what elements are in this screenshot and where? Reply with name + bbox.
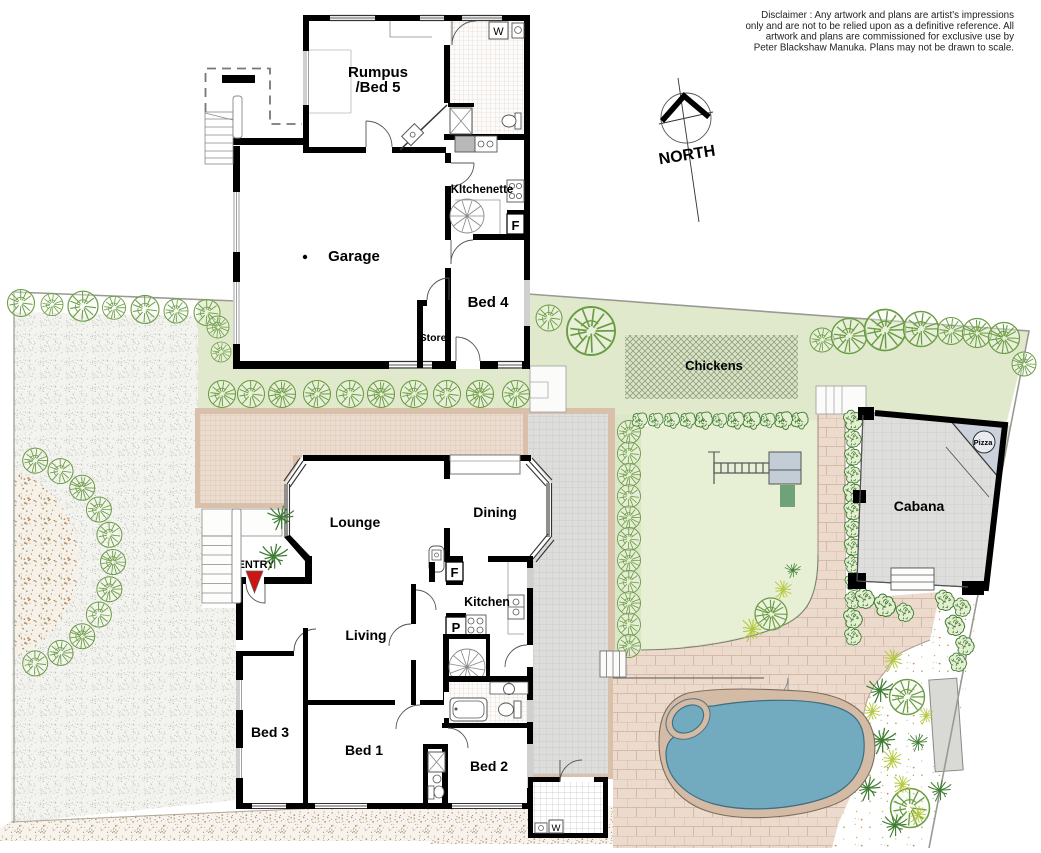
svg-text:F: F — [512, 218, 520, 233]
svg-text:P: P — [452, 620, 461, 635]
svg-text:Chickens: Chickens — [685, 358, 743, 373]
svg-text:Bed 1: Bed 1 — [345, 742, 383, 758]
svg-text:only and are not to be relied: only and are not to be relied upon as a … — [745, 21, 1014, 32]
svg-text:W: W — [493, 26, 504, 38]
svg-text:Bed 4: Bed 4 — [468, 294, 510, 311]
svg-text:Living: Living — [345, 627, 386, 643]
svg-text:artwork and plans are commissi: artwork and plans are commissioned for e… — [766, 32, 1014, 43]
svg-text:Garage: Garage — [328, 248, 380, 265]
svg-text:Pizza: Pizza — [974, 438, 994, 447]
svg-text:Cabana: Cabana — [894, 498, 945, 514]
svg-text:Disclaimer : Any artwork and p: Disclaimer : Any artwork and plans are a… — [761, 10, 1014, 21]
svg-text:Store: Store — [420, 332, 447, 344]
svg-text:W: W — [552, 823, 561, 834]
svg-text:Kitchen: Kitchen — [464, 595, 510, 609]
svg-text:KItchenette: KItchenette — [451, 184, 514, 196]
svg-text:Bed 2: Bed 2 — [470, 758, 508, 774]
svg-text:/Bed 5: /Bed 5 — [355, 79, 400, 96]
svg-text:Bed 3: Bed 3 — [251, 724, 289, 740]
svg-text:Lounge: Lounge — [330, 514, 381, 530]
svg-text:Dining: Dining — [473, 504, 517, 520]
svg-text:Peter Blackshaw Manuka. Plans: Peter Blackshaw Manuka. Plans may not be… — [754, 42, 1014, 53]
svg-text:F: F — [451, 565, 459, 580]
